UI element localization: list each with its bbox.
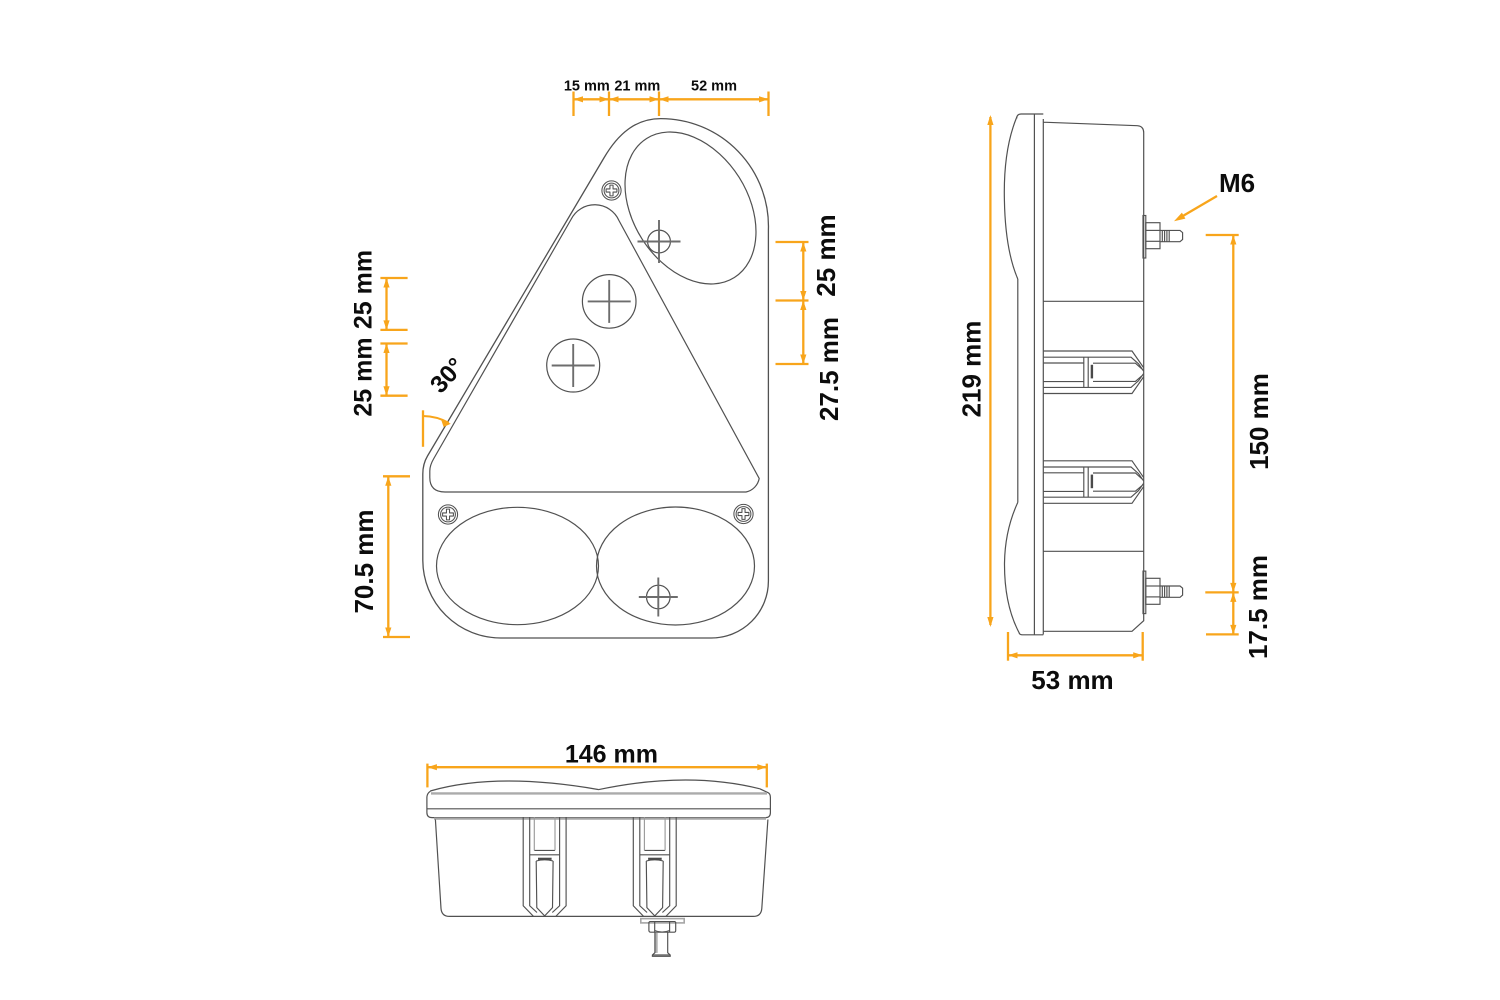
svg-text:52 mm: 52 mm (691, 79, 737, 95)
svg-text:53 mm: 53 mm (1031, 665, 1113, 695)
svg-text:25 mm: 25 mm (811, 214, 841, 296)
svg-text:15 mm: 15 mm (564, 79, 610, 95)
svg-text:25 mm: 25 mm (350, 250, 378, 329)
svg-text:21 mm: 21 mm (614, 79, 660, 95)
svg-text:17.5 mm: 17.5 mm (1243, 555, 1273, 659)
svg-text:150 mm: 150 mm (1244, 373, 1274, 470)
svg-text:27.5 mm: 27.5 mm (814, 317, 844, 421)
svg-text:146 mm: 146 mm (565, 741, 658, 769)
svg-text:M6: M6 (1219, 168, 1255, 198)
svg-text:25 mm: 25 mm (350, 337, 378, 416)
svg-text:30°: 30° (425, 353, 470, 399)
svg-text:70.5 mm: 70.5 mm (349, 509, 379, 613)
svg-text:219 mm: 219 mm (956, 321, 986, 418)
